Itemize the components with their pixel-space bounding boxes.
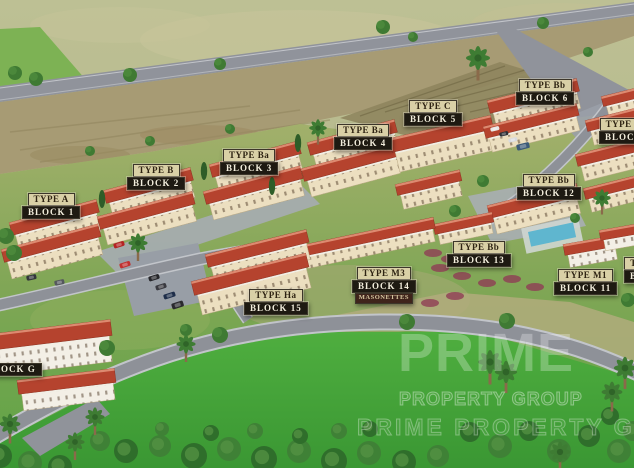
site-plan-scene <box>0 0 634 468</box>
tree <box>570 213 580 223</box>
label-type: TYPE H <box>600 118 634 131</box>
label-block: BLOCK <box>599 131 634 144</box>
tree <box>29 72 43 86</box>
bush <box>488 434 512 458</box>
block-label-block-4: TYPE BaBLOCK 4 <box>334 124 392 150</box>
flower-bush <box>453 272 471 280</box>
bush <box>331 423 347 439</box>
flower-bush <box>478 279 496 287</box>
label-type: TYPE M3 <box>357 267 412 280</box>
tree <box>499 313 515 329</box>
block-label-block-5: TYPE CBLOCK 5 <box>404 100 462 126</box>
block-label-block-15: TYPE HaBLOCK 15 <box>244 289 308 315</box>
bush <box>149 435 171 457</box>
bush <box>460 422 480 442</box>
tree <box>180 324 192 336</box>
cypress-tree <box>201 162 207 180</box>
block-label-b: TB <box>624 257 634 283</box>
label-block: BLOCK 12 <box>517 187 581 200</box>
tree <box>449 205 461 217</box>
flower-bush <box>526 283 544 291</box>
tree <box>214 58 226 70</box>
label-type: TYPE Ba <box>337 124 389 137</box>
bush <box>90 431 110 451</box>
tree <box>376 20 390 34</box>
tree <box>85 146 95 156</box>
bush <box>217 437 241 461</box>
label-type: TYPE Ha <box>249 289 302 302</box>
bush <box>357 441 381 465</box>
block-label-block-14: TYPE M3BLOCK 14MASONETTES <box>352 267 416 304</box>
block-label-block-13: TYPE BbBLOCK 13 <box>447 241 511 267</box>
label-block: BLOCK 4 <box>334 137 392 150</box>
tree <box>583 47 593 57</box>
label-note: MASONETTES <box>355 293 413 304</box>
label-type: TYPE B <box>133 164 180 177</box>
label-block: BLOCK 5 <box>404 113 462 126</box>
block-label-block-g: BLOCK G <box>0 363 42 376</box>
label-block: BLOCK 1 <box>22 206 80 219</box>
label-block: BLOCK 13 <box>447 254 511 267</box>
label-type: TYPE M1 <box>558 269 613 282</box>
tree <box>8 66 22 80</box>
label-type: TYPE Bb <box>453 241 506 254</box>
tree <box>225 124 235 134</box>
label-block: B <box>624 270 634 283</box>
tree <box>537 17 549 29</box>
bush <box>578 425 600 447</box>
tree <box>399 314 415 330</box>
bush <box>607 439 631 463</box>
label-block: BLOCK 14 <box>352 280 416 293</box>
label-block: BLOCK 3 <box>220 162 278 175</box>
flower-bush <box>421 299 439 307</box>
block-label-block-3: TYPE BaBLOCK 3 <box>220 149 278 175</box>
flower-bush <box>446 292 464 300</box>
block-label-block-2: TYPE BBLOCK 2 <box>127 164 185 190</box>
label-block: BLOCK G <box>0 363 42 376</box>
label-type: TYPE C <box>409 100 457 113</box>
tree <box>99 340 115 356</box>
cypress-tree <box>99 190 105 208</box>
label-type: TYPE Ba <box>223 149 275 162</box>
label-block: BLOCK 6 <box>516 92 574 105</box>
bush <box>601 407 619 425</box>
block-label-block-1: TYPE ABLOCK 1 <box>22 193 80 219</box>
tree <box>477 175 489 187</box>
block-label-block-6: TYPE BbBLOCK 6 <box>516 79 574 105</box>
cypress-tree <box>295 134 301 152</box>
label-block: BLOCK 11 <box>554 282 617 295</box>
bush <box>519 421 539 441</box>
site-plan-render: PRIME PROPERTY GROUP PRIME PROPERTY GROU… <box>0 0 634 468</box>
block-label-block-11: TYPE M1BLOCK 11 <box>554 269 617 295</box>
block-label-block-12: TYPE BbBLOCK 12 <box>517 174 581 200</box>
tree <box>123 68 137 82</box>
tree <box>6 245 22 261</box>
flower-bush <box>424 249 442 257</box>
bush <box>203 425 219 441</box>
bush <box>427 445 449 467</box>
bush <box>292 428 308 444</box>
label-type: TYPE Bb <box>523 174 576 187</box>
tree <box>145 136 155 146</box>
label-type: TYPE A <box>28 193 75 206</box>
label-block: BLOCK 15 <box>244 302 308 315</box>
label-type: TYPE Bb <box>519 79 572 92</box>
bush <box>181 443 207 468</box>
label-block: BLOCK 2 <box>127 177 185 190</box>
tree <box>408 32 418 42</box>
tree <box>212 327 228 343</box>
bush <box>114 439 138 463</box>
bush <box>362 421 378 437</box>
cypress-tree <box>269 177 275 195</box>
bush <box>247 423 263 439</box>
bush <box>155 422 169 436</box>
flower-bush <box>503 275 521 283</box>
block-label-block: TYPE HBLOCK <box>599 118 634 144</box>
label-type: T <box>624 257 634 270</box>
